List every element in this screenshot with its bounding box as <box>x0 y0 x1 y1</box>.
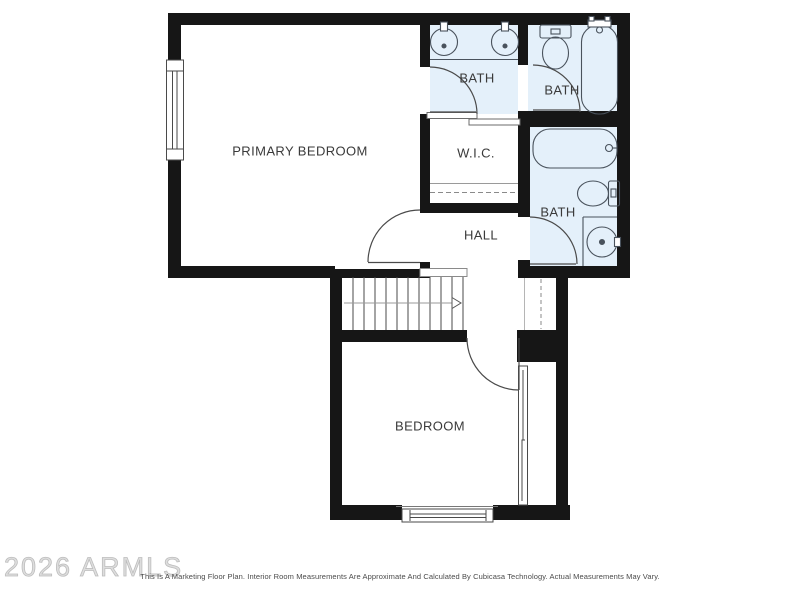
room-label-bath-ensuite: BATH <box>459 71 494 86</box>
floor-plan: PRIMARY BEDROOM BATH BATH W.I.C. BATH HA… <box>0 0 800 600</box>
stair-handrail <box>420 269 467 277</box>
toilet-icon <box>540 25 571 69</box>
stairs-icon <box>344 277 463 330</box>
room-label-bath-top-right: BATH <box>544 83 579 98</box>
toilet-icon <box>578 181 620 206</box>
room-label-wic: W.I.C. <box>457 146 495 161</box>
door-arc-icon <box>530 217 577 264</box>
sink-icon <box>587 227 621 257</box>
window-icon <box>396 507 498 523</box>
sink-icon <box>431 22 458 56</box>
closet-rod-icon <box>430 184 518 193</box>
room-label-bedroom: BEDROOM <box>395 419 465 434</box>
window-icon <box>519 366 528 505</box>
sliding-door-icon <box>427 113 520 126</box>
room-label-primary-bedroom: PRIMARY BEDROOM <box>232 144 368 159</box>
disclaimer-text: This Is A Marketing Floor Plan. Interior… <box>140 572 659 581</box>
fixture-layer <box>0 0 800 600</box>
stair-opening-dashes <box>525 278 542 330</box>
window-icon <box>167 60 184 160</box>
door-arc-icon <box>368 210 420 263</box>
sink-icon <box>492 22 519 56</box>
door-arc-icon <box>467 338 519 390</box>
bathtub-icon <box>582 17 618 115</box>
bathtub-icon <box>533 129 617 168</box>
room-label-bath-hall: BATH <box>540 205 575 220</box>
room-label-hall: HALL <box>464 228 498 243</box>
